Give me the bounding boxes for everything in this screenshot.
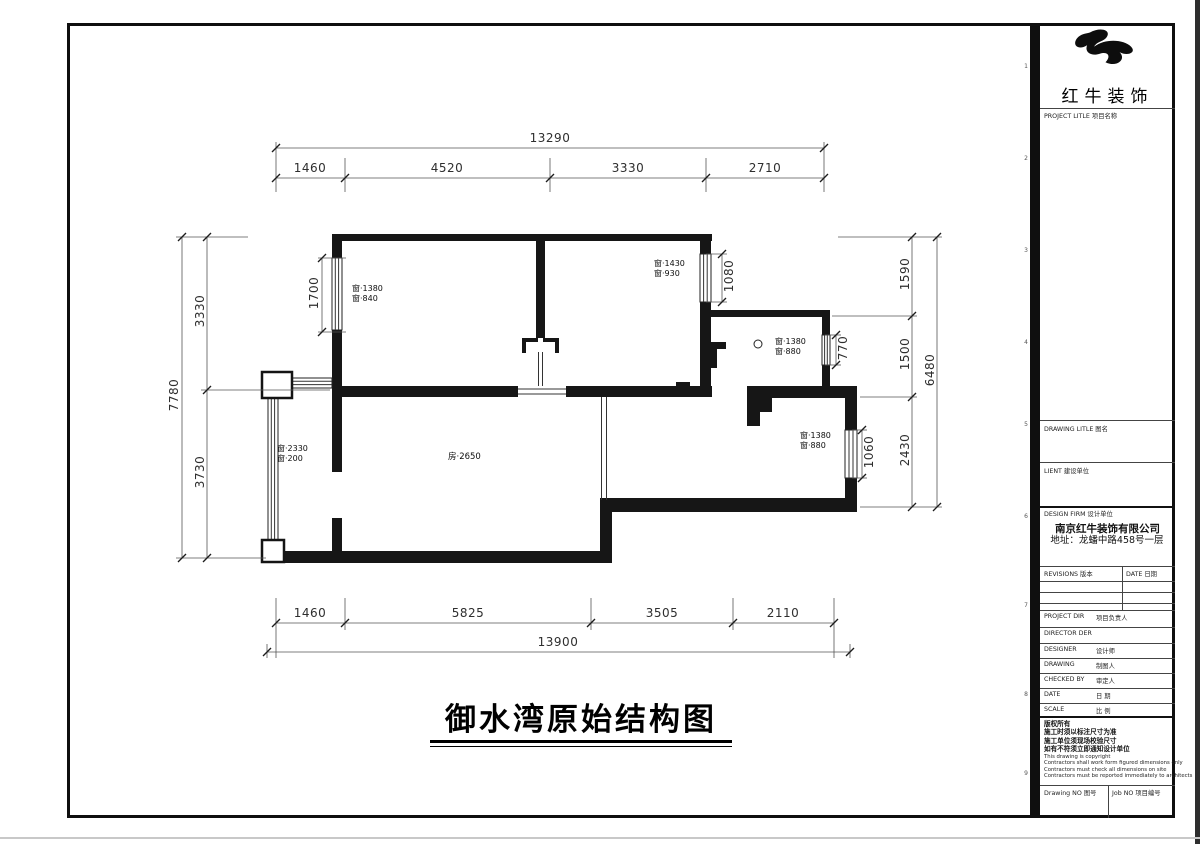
date-col-label: DATE 日期 [1126,569,1157,578]
thin-partition-lines [518,352,607,500]
dim-kitchen-window: 770 [836,308,850,388]
dim-bed1-window: 1700 [307,253,321,333]
label-bed2-window-line2: 窗·930 [654,269,685,279]
dimension-ticks [178,144,941,656]
dim-right-overall: 6480 [923,330,937,410]
tb-divider [1040,462,1175,463]
fold-mark: 6 [1022,513,1028,520]
fold-mark: 9 [1022,770,1028,777]
row-drawing-en: DRAWING [1044,661,1075,668]
tb-divider [1040,420,1175,421]
copyright-line: Contractors shall work form figured dime… [1044,760,1192,767]
client-label: LIENT 建设单位 [1044,466,1089,475]
label-bed1-window: 窗·1380 窗·840 [352,284,383,304]
dim-right-seg-3: 2430 [898,410,912,490]
tb-divider [1040,610,1175,611]
label-kitchen-window-line2: 窗·880 [775,347,806,357]
row-drawing-zh: 制图人 [1096,661,1115,670]
brand-name: 红牛装饰 [1040,82,1175,107]
tb-divider [1040,673,1175,674]
fixture-circle [754,340,762,348]
copyright-line: 施工时须以标注尺寸为准 [1044,728,1192,736]
label-bed2-window: 窗·1430 窗·930 [654,259,685,279]
title-block-bar [1030,23,1040,818]
row-designer-zh: 设计师 [1096,646,1115,655]
row-project-dir-zh: 项目负责人 [1096,613,1127,622]
row-project-dir-en: PROJECT DIR [1044,613,1084,620]
label-se-window-line2: 窗·880 [800,441,831,451]
copyright-line: Contractors must be reported immediately… [1044,773,1192,780]
revisions-label: REVISIONS 版本 [1044,569,1093,578]
fold-mark: 5 [1022,421,1028,428]
row-checked-zh: 审定人 [1096,676,1115,685]
label-se-window-line1: 窗·1380 [800,431,831,441]
dim-right-seg-1: 1590 [898,234,912,314]
dim-bottom-overall: 13900 [478,635,638,649]
label-kitchen-window-line1: 窗·1380 [775,337,806,347]
copyright-block: 版权所有 施工时须以标注尺寸为准 施工单位须现场校验尺寸 如有不符须立即通知设计… [1044,720,1192,780]
tb-divider [1040,603,1175,604]
dimension-lines [176,142,942,658]
dim-top-overall: 13290 [470,131,630,145]
label-bed2-window-line1: 窗·1430 [654,259,685,269]
drawing-no-label: Drawing NO 图号 [1044,788,1096,797]
copyright-line: 如有不符须立即通知设计单位 [1044,745,1192,753]
tb-divider [1040,658,1175,659]
brand-logo-icon [1063,28,1148,78]
row-director-en: DIRECTOR DER [1044,630,1092,637]
row-designer-en: DESIGNER [1044,646,1077,653]
row-date-zh: 日 期 [1096,691,1111,700]
dim-se-window: 1060 [862,412,876,492]
fold-mark: 4 [1022,339,1028,346]
fold-mark: 1 [1022,63,1028,70]
fold-mark: 2 [1022,155,1028,162]
dim-left-seg-2: 3730 [193,432,207,512]
row-scale-zh: 比 例 [1096,706,1111,715]
fold-mark: 8 [1022,691,1028,698]
dim-right-seg-2: 1500 [898,314,912,394]
tb-col-divider [1122,566,1123,610]
fold-mark: 7 [1022,602,1028,609]
drawing-title-label: DRAWING LITLE 图名 [1044,424,1108,433]
dim-top-seg-2: 4520 [407,161,487,175]
dim-top-seg-3: 3330 [588,161,668,175]
label-kitchen-window: 窗·1380 窗·880 [775,337,806,357]
tb-divider [1040,581,1175,582]
row-date-en: DATE [1044,691,1060,698]
dim-left-seg-1: 3330 [193,271,207,351]
label-bed1-window-line1: 窗·1380 [352,284,383,294]
label-se-window: 窗·1380 窗·880 [800,431,831,451]
firm-address: 地址：龙蟠中路458号一层 [1048,535,1166,546]
tb-divider [1040,627,1175,628]
screen-right-edge [1195,0,1200,844]
label-bed1-window-line2: 窗·840 [352,294,383,304]
dim-bottom-seg-3: 3505 [622,606,702,620]
tb-divider [1040,506,1175,508]
tb-divider [1040,566,1175,567]
tb-divider [1040,592,1175,593]
dim-bottom-seg-4: 2110 [743,606,823,620]
tb-col-divider [1108,785,1109,818]
label-room-height: 房·2650 [448,450,481,462]
dim-top-seg-1: 1460 [270,161,350,175]
dim-bottom-seg-1: 1460 [270,606,350,620]
drawing-title: 御水湾原始结构图 [430,694,732,739]
label-balcony-window-line2: 窗·200 [277,454,308,464]
tb-divider [1040,108,1175,109]
screen-bottom-edge [0,837,1200,839]
project-title-label: PROJECT LITLE 项目名称 [1044,111,1117,120]
tb-divider [1040,703,1175,704]
copyright-line: Contractors must check all dimensions on… [1044,767,1192,774]
copyright-line: This drawing is copyright [1044,754,1192,761]
copyright-line: 施工单位须现场校验尺寸 [1044,737,1192,745]
title-underline-thick [430,740,732,743]
title-underline-thin [430,746,732,747]
label-balcony-window: 窗·2330 窗·200 [277,444,308,464]
row-scale-en: SCALE [1044,706,1064,713]
fold-mark: 3 [1022,247,1028,254]
drawing-sheet: 13290 1460 4520 3330 2710 1460 5825 3505… [0,0,1200,844]
job-no-label: Job NO 项目编号 [1112,788,1161,797]
tb-divider [1040,643,1175,644]
dim-bed2-window: 1080 [722,236,736,316]
firm-name: 南京红牛装饰有限公司 [1040,521,1175,536]
tb-divider [1040,688,1175,689]
design-firm-label: DESIGN FIRM 设计单位 [1044,509,1113,518]
dim-bottom-seg-2: 5825 [428,606,508,620]
label-balcony-window-line1: 窗·2330 [277,444,308,454]
row-checked-en: CHECKED BY [1044,676,1084,683]
dim-top-seg-4: 2710 [725,161,805,175]
tb-divider [1040,716,1175,718]
dim-left-overall: 7780 [167,355,181,435]
